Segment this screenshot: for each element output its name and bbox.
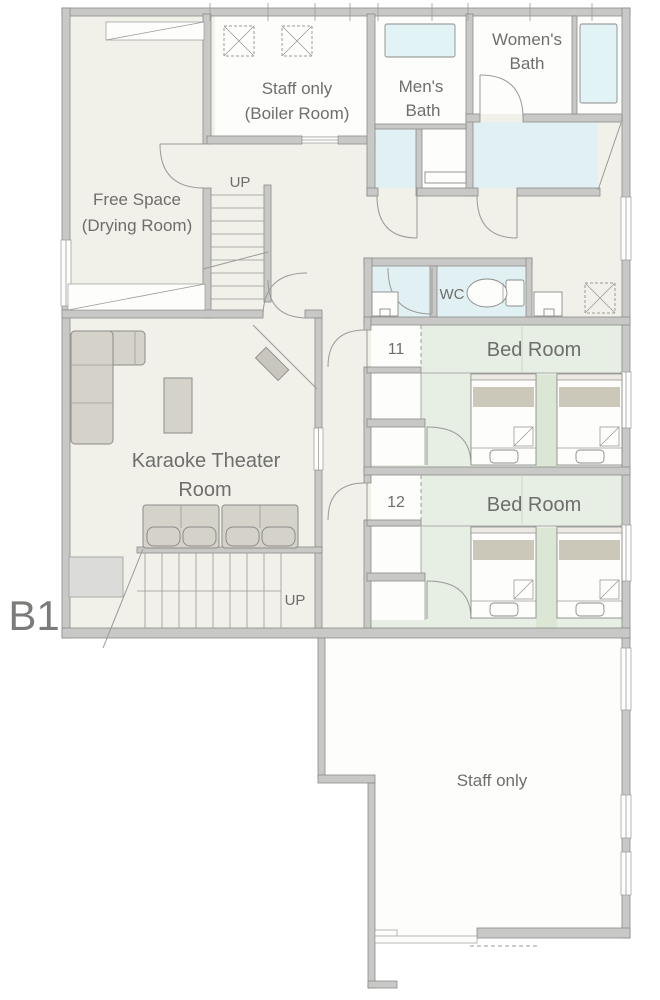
sink-icon xyxy=(534,292,562,316)
womens-bath-label-line2: Bath xyxy=(510,54,545,73)
mens-washing-floor xyxy=(375,129,416,188)
window-bedroom-11 xyxy=(621,372,631,428)
karaoke-label-line2: Room xyxy=(178,479,231,501)
bed xyxy=(471,374,536,465)
womens-bath-label-line1: Women's xyxy=(492,30,562,49)
bedroom-11-closet-b xyxy=(371,427,425,465)
wc-label: WC xyxy=(440,286,465,303)
window-staff-upper xyxy=(621,648,631,710)
bedroom-11-number: 11 xyxy=(388,341,405,358)
karaoke-stairs-up-label: UP xyxy=(285,592,306,609)
floors xyxy=(70,16,622,936)
bed xyxy=(471,527,536,618)
above-indicator-bottom xyxy=(68,284,205,310)
floor-plan-svg: Free Space (Drying Room) Staff only (Boi… xyxy=(0,0,660,1000)
free-space-label-line1: Free Space xyxy=(93,190,181,209)
window-hall-east xyxy=(621,197,631,260)
staff-area-label: Staff only xyxy=(457,771,528,790)
washstand-counter xyxy=(425,172,466,183)
hall-stairs-up-label: UP xyxy=(230,174,251,191)
bed xyxy=(557,374,622,465)
above-indicator-top xyxy=(106,22,204,40)
floor-level-label: B1 xyxy=(8,592,59,639)
bedroom-12-mat xyxy=(536,528,557,628)
window-karaoke xyxy=(314,428,323,470)
womens-changing-floor xyxy=(473,122,598,188)
floor-plan: Free Space (Drying Room) Staff only (Boi… xyxy=(0,0,660,1000)
bedroom-11-mat xyxy=(536,375,557,467)
mens-bathtub-icon xyxy=(385,24,455,57)
window-staff-mid xyxy=(621,795,631,838)
bedroom-12-label: Bed Room xyxy=(487,494,582,516)
bedroom-12-number: 12 xyxy=(387,494,405,511)
window-bedroom-12 xyxy=(621,525,631,581)
toilet-icon xyxy=(467,279,524,307)
theater-sofa xyxy=(143,505,219,548)
table xyxy=(164,378,192,433)
boiler-room-label-line2: (Boiler Room) xyxy=(245,104,350,123)
bed xyxy=(557,527,622,618)
bedroom-12-closet-b xyxy=(371,581,425,620)
bedroom-11-label: Bed Room xyxy=(487,339,582,361)
mens-bath-label-line2: Bath xyxy=(406,101,441,120)
av-rack xyxy=(69,557,123,597)
bedroom-12-closet-a xyxy=(371,527,421,573)
theater-sofa xyxy=(222,505,298,548)
free-space-label-line2: (Drying Room) xyxy=(82,216,193,235)
window-staff-lower xyxy=(621,852,631,895)
boiler-sliding-door xyxy=(302,137,338,143)
boiler-room-label-line1: Staff only xyxy=(262,79,333,98)
sink-icon xyxy=(372,292,398,316)
mens-bath-label-line1: Men's xyxy=(399,77,444,96)
bedroom-11-closet-a xyxy=(371,373,421,419)
karaoke-label-line1: Karaoke Theater xyxy=(132,450,281,472)
womens-bathtub-icon xyxy=(580,24,617,103)
